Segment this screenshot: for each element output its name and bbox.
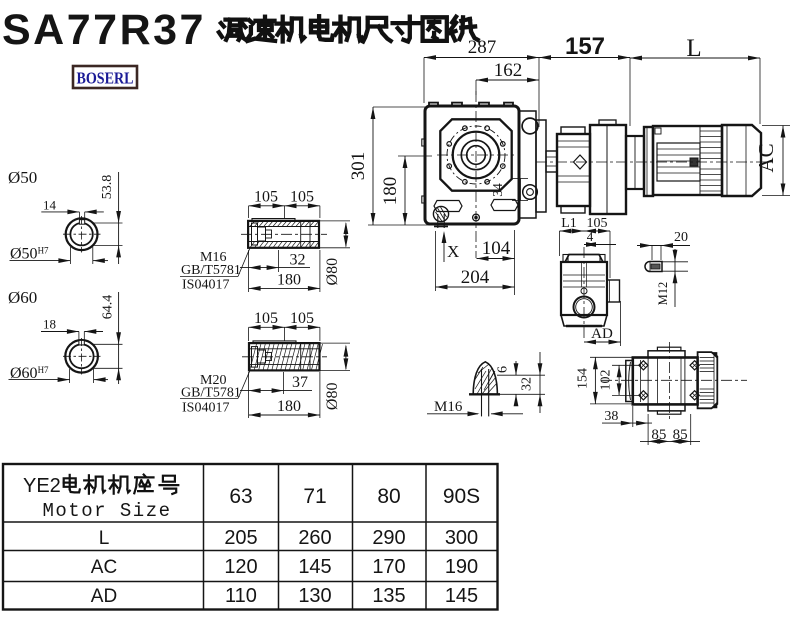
svg-text:105: 105 [254, 189, 278, 206]
svg-text:145: 145 [298, 556, 331, 578]
svg-text:4: 4 [587, 229, 594, 244]
svg-text:162: 162 [494, 60, 523, 81]
svg-text:37: 37 [292, 374, 308, 391]
svg-text:AD: AD [91, 586, 117, 607]
svg-text:205: 205 [224, 527, 257, 549]
svg-text:105: 105 [290, 189, 314, 206]
svg-text:102: 102 [599, 370, 614, 391]
svg-text:BOSERL: BOSERL [77, 69, 134, 88]
svg-text:20: 20 [674, 230, 688, 245]
svg-text:L: L [99, 528, 110, 549]
svg-text:85: 85 [673, 427, 688, 443]
svg-text:GB/T5781: GB/T5781 [181, 263, 241, 278]
svg-text:104: 104 [482, 238, 511, 259]
svg-text:204: 204 [461, 267, 490, 288]
svg-text:105: 105 [290, 310, 314, 327]
svg-text:14: 14 [43, 198, 57, 213]
svg-text:Ø80: Ø80 [324, 258, 341, 286]
svg-text:Ø80: Ø80 [324, 383, 341, 411]
svg-text:170: 170 [372, 556, 405, 578]
svg-text:L1: L1 [561, 216, 577, 231]
svg-text:Ø60: Ø60 [8, 288, 37, 307]
svg-text:Ø50: Ø50 [8, 168, 37, 187]
svg-text:32: 32 [520, 377, 535, 391]
svg-text:AC: AC [91, 557, 117, 578]
svg-text:190: 190 [445, 556, 478, 578]
svg-text:180: 180 [277, 398, 301, 415]
svg-text:90S: 90S [443, 485, 480, 508]
svg-text:L: L [686, 35, 701, 62]
svg-text:IS04017: IS04017 [182, 278, 229, 293]
svg-text:6: 6 [496, 366, 511, 373]
svg-text:M12: M12 [656, 282, 670, 306]
svg-text:IS04017: IS04017 [182, 401, 229, 416]
svg-text:290: 290 [372, 527, 405, 549]
svg-text:71: 71 [303, 485, 326, 508]
svg-text:145: 145 [445, 585, 478, 607]
svg-text:154: 154 [575, 368, 590, 389]
svg-text:300: 300 [445, 527, 478, 549]
svg-text:18: 18 [43, 316, 56, 331]
svg-text:YE2: YE2 [23, 475, 61, 497]
svg-text:260: 260 [298, 527, 331, 549]
svg-text:AC: AC [754, 143, 778, 172]
svg-text:M16: M16 [434, 399, 463, 415]
svg-text:130: 130 [298, 585, 331, 607]
svg-text:80: 80 [377, 485, 400, 508]
svg-text:63: 63 [229, 485, 252, 508]
svg-text:180: 180 [277, 272, 301, 289]
svg-text:64.4: 64.4 [101, 295, 116, 320]
svg-text:X: X [447, 242, 459, 261]
svg-text:120: 120 [224, 556, 257, 578]
svg-text:287: 287 [468, 37, 497, 58]
svg-text:53.8: 53.8 [100, 175, 115, 200]
svg-text:301: 301 [348, 152, 369, 181]
svg-text:180: 180 [380, 177, 401, 206]
svg-text:85: 85 [651, 427, 666, 443]
svg-text:135: 135 [372, 585, 405, 607]
svg-text:AD: AD [591, 326, 613, 342]
svg-text:34: 34 [490, 183, 505, 197]
svg-text:105: 105 [254, 310, 278, 327]
svg-text:SA77R37: SA77R37 [2, 6, 206, 54]
svg-text:32: 32 [290, 252, 306, 269]
svg-text:157: 157 [565, 33, 605, 60]
svg-text:38: 38 [604, 409, 618, 424]
svg-text:Motor Size: Motor Size [42, 500, 171, 522]
svg-text:110: 110 [225, 585, 257, 607]
